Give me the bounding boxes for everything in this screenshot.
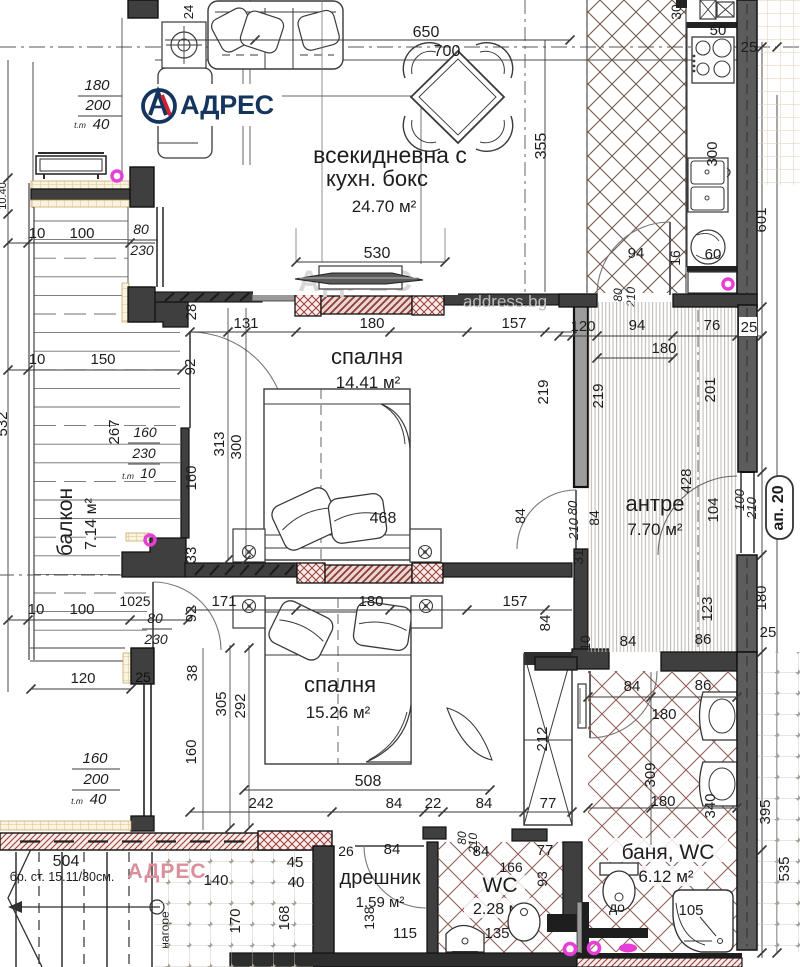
svg-text:t.m: t.m	[71, 796, 83, 806]
svg-text:180: 180	[84, 77, 110, 94]
svg-text:30: 30	[668, 4, 684, 20]
svg-text:84: 84	[476, 795, 493, 812]
svg-text:395: 395	[757, 799, 774, 824]
svg-text:спалня: спалня	[331, 344, 403, 369]
svg-text:160: 160	[183, 465, 200, 490]
svg-text:22: 22	[425, 795, 442, 812]
svg-text:100: 100	[69, 225, 94, 242]
svg-text:25: 25	[741, 39, 758, 56]
svg-text:80: 80	[611, 288, 625, 302]
svg-text:15.26 м²: 15.26 м²	[306, 703, 371, 722]
svg-text:115: 115	[393, 925, 417, 942]
svg-text:200: 200	[84, 97, 111, 114]
svg-text:40: 40	[90, 791, 107, 808]
svg-text:230: 230	[143, 631, 168, 647]
svg-text:10: 10	[29, 225, 46, 242]
svg-text:104: 104	[705, 497, 722, 522]
svg-text:166: 166	[499, 859, 523, 875]
svg-text:84: 84	[537, 615, 554, 632]
svg-text:7.70 м²: 7.70 м²	[627, 520, 682, 539]
svg-text:170: 170	[227, 908, 244, 933]
svg-text:305: 305	[213, 691, 230, 716]
svg-text:86: 86	[695, 677, 712, 694]
svg-text:24.70 м²: 24.70 м²	[352, 197, 417, 216]
svg-text:76: 76	[704, 317, 721, 334]
svg-text:428: 428	[678, 468, 695, 493]
svg-text:180: 180	[753, 585, 770, 610]
svg-text:80: 80	[133, 221, 149, 237]
svg-text:100: 100	[69, 601, 94, 618]
svg-text:300: 300	[704, 141, 721, 166]
svg-text:80: 80	[565, 500, 580, 515]
svg-text:180: 180	[359, 315, 384, 332]
svg-text:120: 120	[570, 318, 595, 335]
svg-text:230: 230	[131, 445, 156, 461]
svg-text:до: до	[609, 899, 625, 915]
svg-text:всекидневна с: всекидневна с	[313, 142, 467, 168]
svg-text:160: 160	[82, 750, 108, 767]
svg-text:50: 50	[710, 22, 727, 39]
svg-text:700: 700	[434, 43, 461, 60]
svg-text:10: 10	[577, 635, 593, 651]
svg-text:230: 230	[129, 242, 154, 258]
svg-text:80: 80	[147, 610, 163, 626]
svg-text:антре: антре	[626, 491, 685, 516]
svg-text:468: 468	[370, 510, 397, 527]
svg-text:94: 94	[628, 245, 645, 262]
svg-text:135: 135	[484, 925, 509, 942]
svg-text:292: 292	[232, 693, 249, 718]
svg-text:267: 267	[106, 419, 123, 444]
svg-text:210: 210	[566, 517, 581, 540]
svg-text:1025: 1025	[119, 593, 150, 609]
svg-text:180: 180	[651, 706, 676, 723]
svg-text:212: 212	[534, 726, 551, 751]
svg-text:40: 40	[93, 116, 110, 133]
svg-text:94: 94	[629, 317, 646, 334]
svg-text:200: 200	[82, 771, 109, 788]
svg-text:201: 201	[702, 377, 719, 402]
svg-text:77: 77	[537, 842, 554, 859]
svg-text:309: 309	[642, 762, 659, 787]
svg-text:10: 10	[29, 351, 46, 368]
svg-text:160: 160	[183, 739, 200, 764]
svg-text:180: 180	[650, 793, 675, 810]
svg-text:532: 532	[0, 411, 11, 436]
svg-text:24: 24	[181, 5, 196, 19]
svg-text:157: 157	[501, 315, 526, 332]
svg-text:530: 530	[364, 245, 391, 262]
svg-text:address.bg: address.bg	[463, 292, 547, 311]
svg-text:504: 504	[53, 853, 80, 870]
svg-text:WC: WC	[483, 874, 518, 897]
svg-text:140: 140	[203, 872, 228, 889]
svg-text:84: 84	[386, 795, 403, 812]
svg-text:38: 38	[184, 665, 201, 682]
svg-text:t.m: t.m	[122, 471, 134, 481]
svg-text:26: 26	[338, 843, 354, 859]
svg-text:242: 242	[248, 795, 273, 812]
svg-text:84: 84	[624, 678, 641, 695]
svg-text:93: 93	[534, 871, 550, 887]
svg-text:300: 300	[228, 434, 245, 459]
svg-text:650: 650	[413, 24, 440, 41]
svg-text:бр. ст. 15.11/30см.: бр. ст. 15.11/30см.	[10, 870, 115, 884]
svg-text:340: 340	[702, 793, 719, 818]
svg-text:210: 210	[744, 496, 759, 519]
svg-text:6.12 м²: 6.12 м²	[638, 867, 693, 886]
svg-text:180: 180	[651, 340, 676, 357]
svg-text:25: 25	[741, 319, 758, 336]
svg-text:ап. 20: ап. 20	[770, 485, 787, 530]
svg-text:16: 16	[667, 250, 683, 266]
svg-text:105: 105	[678, 902, 703, 919]
svg-text:АДРЕС: АДРЕС	[127, 860, 206, 883]
svg-text:балкон: балкон	[54, 488, 77, 556]
svg-text:t.m: t.m	[74, 120, 86, 130]
svg-text:60: 60	[705, 246, 722, 263]
svg-text:84: 84	[384, 841, 401, 858]
svg-text:157: 157	[502, 593, 527, 610]
svg-text:601: 601	[753, 207, 770, 232]
svg-text:45: 45	[287, 854, 304, 871]
svg-text:123: 123	[699, 596, 716, 621]
svg-text:86: 86	[695, 631, 712, 648]
svg-text:25: 25	[135, 669, 151, 685]
svg-text:138: 138	[361, 906, 377, 930]
svg-text:7.14 м²: 7.14 м²	[83, 497, 100, 550]
svg-text:31: 31	[570, 549, 586, 565]
svg-text:219: 219	[535, 379, 552, 404]
svg-text:219: 219	[590, 383, 607, 408]
svg-text:спалня: спалня	[304, 672, 376, 697]
svg-text:171: 171	[211, 593, 236, 610]
svg-text:535: 535	[776, 856, 793, 881]
svg-text:33: 33	[183, 547, 200, 564]
svg-text:77: 77	[540, 795, 557, 812]
svg-text:150: 150	[90, 351, 115, 368]
svg-text:кухн. бокс: кухн. бокс	[326, 166, 428, 191]
svg-text:10: 10	[140, 465, 156, 481]
svg-text:84: 84	[586, 510, 602, 526]
svg-text:180: 180	[358, 593, 383, 610]
svg-text:355: 355	[533, 133, 550, 160]
svg-text:160: 160	[133, 424, 157, 440]
svg-text:84: 84	[473, 843, 490, 860]
svg-text:дрешник: дрешник	[340, 867, 421, 889]
svg-text:40: 40	[288, 874, 305, 891]
svg-text:313: 313	[211, 431, 228, 456]
svg-text:25: 25	[760, 624, 777, 641]
svg-text:84: 84	[620, 633, 637, 650]
svg-text:баня, WC: баня, WC	[622, 841, 715, 864]
svg-text:10: 10	[28, 601, 45, 618]
svg-text:120: 120	[70, 670, 95, 687]
svg-text:508: 508	[355, 773, 382, 790]
svg-text:АДРЕС: АДРЕС	[180, 90, 274, 120]
svg-text:28: 28	[183, 304, 200, 321]
svg-text:84: 84	[512, 508, 528, 524]
svg-text:168: 168	[276, 905, 293, 930]
